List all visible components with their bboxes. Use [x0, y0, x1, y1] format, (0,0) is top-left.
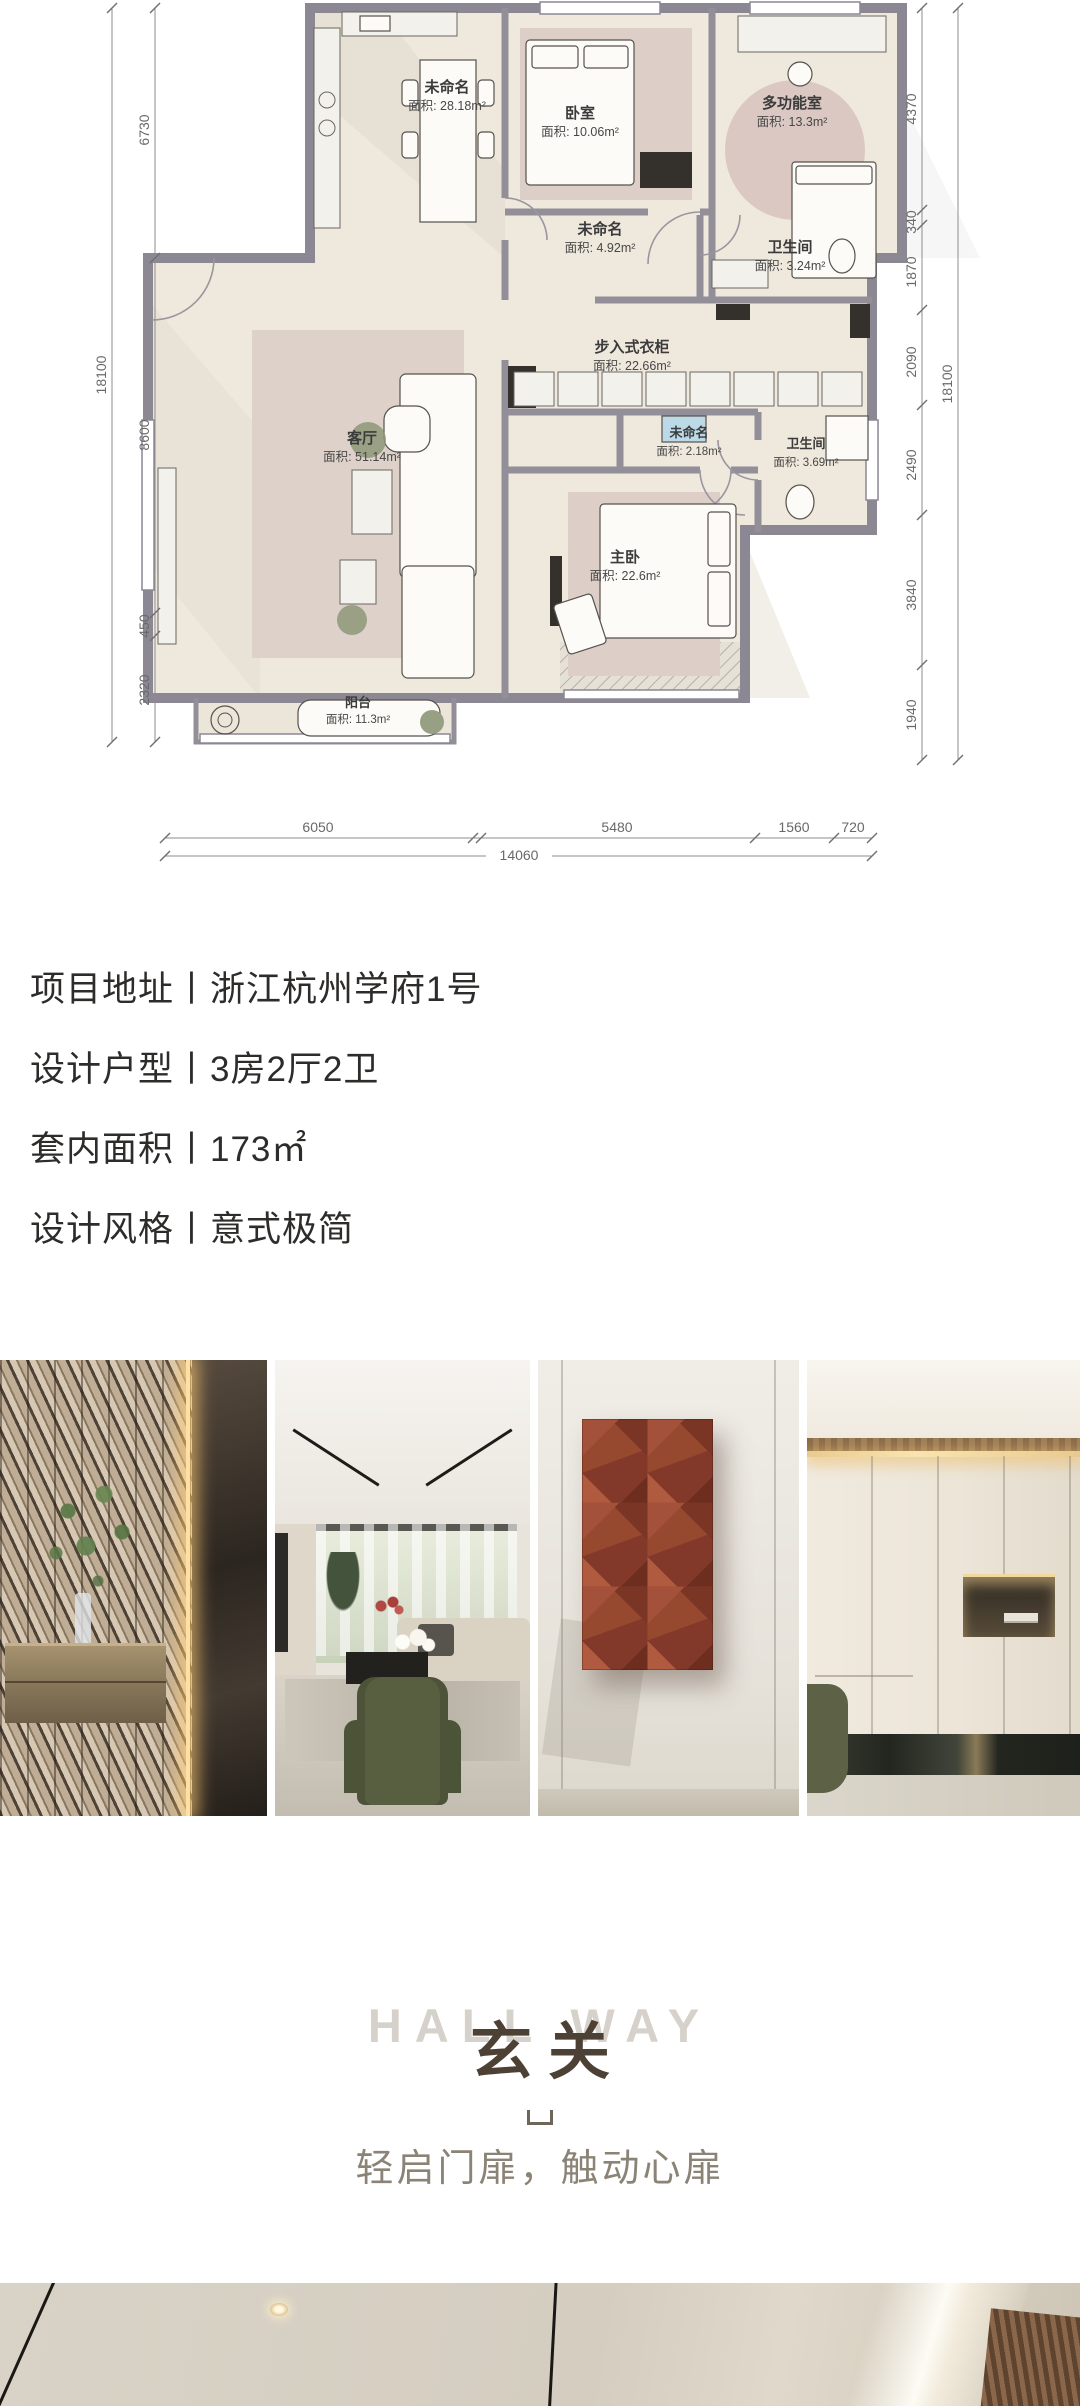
dim-left: 8600: [136, 419, 152, 450]
project-style: 设计风格丨意式极简: [30, 1190, 482, 1270]
project-address: 项目地址丨浙江杭州学府1号: [30, 950, 482, 1030]
photo-hallway-ceiling: [0, 2283, 1080, 2406]
dim-right: 1940: [903, 699, 919, 730]
room-label: 阳台: [345, 695, 371, 710]
dim-bottom: 5480: [601, 819, 632, 835]
wood-trim: [807, 1438, 1080, 1452]
room-label: 卧室: [565, 104, 595, 122]
room-label: 步入式衣柜: [594, 338, 669, 356]
room-label: 卫生间: [767, 238, 812, 256]
marble-bench: [807, 1734, 1080, 1775]
drawer-line: [815, 1675, 913, 1677]
dim-right: 4370: [903, 93, 919, 124]
room-area: 面积: 11.3m²: [326, 713, 390, 726]
dim-bottom: 6050: [302, 819, 333, 835]
dim-right: 2090: [903, 346, 919, 377]
green-chair: [807, 1684, 848, 1793]
photo-living-room: [275, 1360, 530, 1816]
green-chair: [357, 1677, 449, 1805]
project-info: 项目地址丨浙江杭州学府1号 设计户型丨3房2厅2卫 套内面积丨173㎡ 设计风格…: [30, 950, 482, 1270]
design-post-page: 未命名 面积: 28.18m² 卧室 面积: 10.06m² 多功能室 面积: …: [0, 0, 1080, 2406]
floor: [807, 1775, 1080, 1816]
tv-screen: [275, 1533, 288, 1652]
dim-bottom: 1560: [778, 819, 809, 835]
photo-gallery: [0, 1360, 1080, 1816]
section-title-cn: 玄关: [0, 2020, 1080, 2086]
panel-seam: [774, 1360, 776, 1816]
project-area: 套内面积丨173㎡: [30, 1110, 482, 1190]
wood-slats: [975, 2308, 1080, 2406]
project-layout: 设计户型丨3房2厅2卫: [30, 1030, 482, 1110]
section-tagline: 轻启门扉，触动心扉: [0, 2147, 1080, 2191]
photo-entry-console: [0, 1360, 267, 1816]
section-hallway: HALL WAY 玄关 轻启门扉，触动心扉: [0, 2000, 1080, 2191]
room-area: 面积: 22.6m²: [590, 569, 661, 583]
room-label: 多功能室: [762, 94, 822, 112]
led-strip: [186, 1360, 190, 1816]
display-niche: [963, 1574, 1056, 1636]
dim-right: 340: [903, 210, 919, 234]
room-area: 面积: 10.06m²: [541, 125, 619, 139]
dim-right: 3840: [903, 579, 919, 610]
plant: [323, 1552, 363, 1618]
room-area: 面积: 3.69m²: [773, 456, 838, 469]
room-label: 客厅: [346, 429, 377, 447]
room-label: 未命名: [423, 78, 469, 96]
red-flowers: [367, 1593, 407, 1619]
divider-bracket-icon: [527, 2110, 553, 2125]
room-area: 面积: 2.18m²: [656, 445, 721, 458]
console-seam: [5, 1681, 165, 1683]
room-label: 主卧: [610, 548, 640, 566]
room-area: 面积: 13.3m²: [757, 115, 828, 129]
white-flowers: [387, 1627, 439, 1657]
dim-right: 2490: [903, 449, 919, 480]
dim-left: 6730: [136, 114, 152, 145]
room-area: 面积: 4.92m²: [565, 241, 636, 255]
dim-left-total: 18100: [93, 355, 109, 394]
geometric-relief-art: [582, 1419, 713, 1670]
photo-hall-cabinets: [807, 1360, 1080, 1816]
plant: [32, 1469, 152, 1609]
room-area: 面积: 3.24m²: [755, 259, 826, 273]
room-area: 面积: 51.14m²: [323, 450, 401, 464]
room-label: 未命名: [668, 425, 708, 440]
dim-right-total: 18100: [939, 364, 955, 403]
photo-wall-art: [538, 1360, 799, 1816]
dim-right: 1870: [903, 256, 919, 287]
niche-objects: [1004, 1613, 1038, 1623]
room-area: 面积: 22.66m²: [593, 359, 671, 373]
dim-bottom-total: 14060: [500, 847, 539, 863]
dim-left: 2320: [136, 674, 152, 705]
room-area: 面积: 28.18m²: [408, 99, 486, 113]
marble-panel: [192, 1360, 267, 1816]
vase: [75, 1593, 91, 1647]
dim-left: 450: [136, 614, 152, 638]
dim-bottom: 720: [841, 819, 865, 835]
room-label: 未命名: [576, 220, 622, 238]
floor-plan: 未命名 面积: 28.18m² 卧室 面积: 10.06m² 多功能室 面积: …: [0, 0, 1080, 870]
downlight: [270, 2303, 288, 2316]
room-label: 卫生间: [786, 436, 825, 451]
floor: [538, 1789, 799, 1816]
ceiling: [807, 1360, 1080, 1438]
